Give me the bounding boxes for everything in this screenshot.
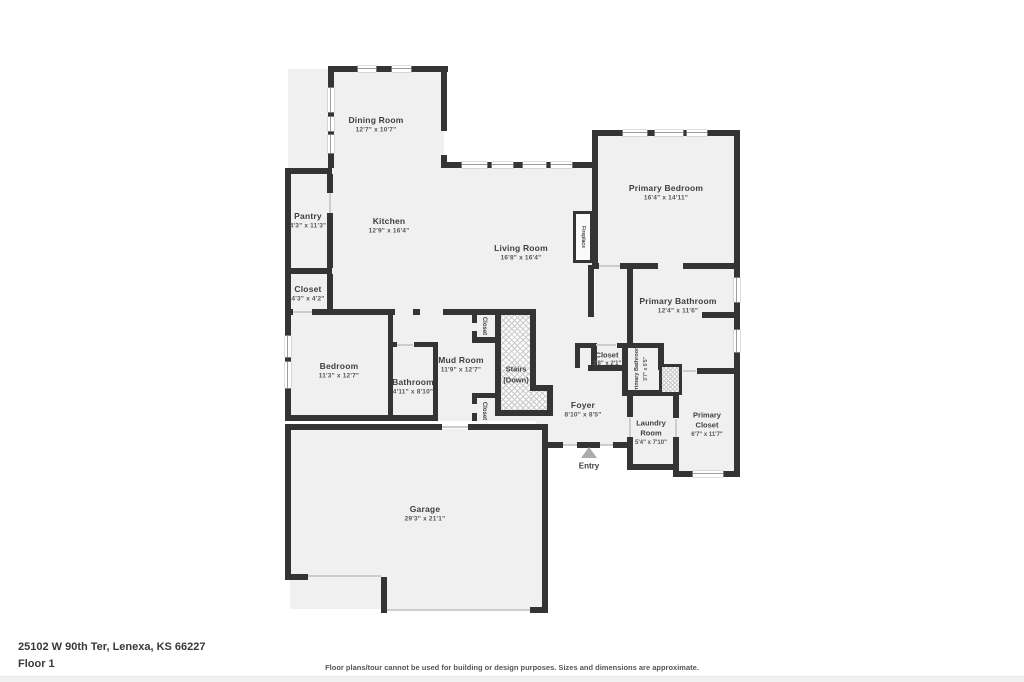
wall xyxy=(312,309,395,315)
door-opening xyxy=(629,418,631,437)
wall xyxy=(627,464,679,470)
wall xyxy=(542,424,548,613)
window xyxy=(734,278,740,302)
room-dims-foyer: 8'10" x 8'5" xyxy=(565,412,602,419)
wall xyxy=(627,437,633,470)
room-label-laundry-2: Room xyxy=(640,429,661,438)
window xyxy=(492,162,513,168)
wall xyxy=(547,385,553,416)
room-dims-living: 16'8" x 16'4" xyxy=(501,255,542,262)
room-dims-hall-closet: 3'8" x 2'1" xyxy=(593,361,622,367)
entry-door xyxy=(563,444,577,446)
window xyxy=(328,135,334,153)
door-opening xyxy=(600,444,613,446)
stairs-hatch xyxy=(531,391,548,411)
room-dims-primary-closet: 6'7" x 11'7" xyxy=(691,432,723,438)
stairs-label: Stairs xyxy=(506,365,527,374)
window xyxy=(462,162,487,168)
wall xyxy=(285,268,332,274)
garage-door-opening xyxy=(387,609,530,611)
room-label-garage: Garage xyxy=(410,504,441,514)
floor-plan-page: Dining Room 12'7" x 10'7" Kitchen 12'9" … xyxy=(0,0,1024,682)
door-opening xyxy=(596,344,616,346)
wall xyxy=(734,130,740,477)
floor-plan: Dining Room 12'7" x 10'7" Kitchen 12'9" … xyxy=(0,0,1024,682)
wall xyxy=(575,348,580,368)
window xyxy=(623,130,647,136)
room-label-foyer: Foyer xyxy=(571,400,595,410)
wall xyxy=(472,331,477,337)
window xyxy=(687,130,707,136)
room-label-primary-bedroom: Primary Bedroom xyxy=(629,183,703,193)
wall xyxy=(327,213,333,268)
door-opening xyxy=(397,344,413,346)
wall xyxy=(285,424,442,430)
room-dims-primary-bathroom-small: 3'7" x 5'5" xyxy=(643,357,649,381)
entry-label: Entry xyxy=(579,462,599,471)
room-label-living: Living Room xyxy=(494,243,548,253)
wall xyxy=(627,396,633,417)
room-label-pantry: Pantry xyxy=(294,211,322,221)
room-label-primary-closet: Primary xyxy=(693,411,721,420)
window xyxy=(285,336,291,357)
room-fill xyxy=(536,312,628,444)
door-opening xyxy=(675,419,677,437)
wall xyxy=(622,343,628,393)
wall xyxy=(327,174,333,193)
fireplace-label: Fireplace xyxy=(580,226,586,248)
wall xyxy=(588,265,594,317)
entry-arrow-icon xyxy=(581,447,597,458)
wall xyxy=(443,309,536,315)
address-label: 25102 W 90th Ter, Lenexa, KS 66227 xyxy=(18,641,206,653)
window xyxy=(285,362,291,388)
room-dims-laundry: 5'4" x 7'10" xyxy=(635,440,667,446)
window xyxy=(328,88,334,112)
room-label-primary-bathroom-small: Primary Bathroom xyxy=(634,345,640,393)
window xyxy=(523,162,546,168)
stairs-hatch xyxy=(498,315,531,412)
room-label-mud-room: Mud Room xyxy=(438,355,484,365)
wall xyxy=(472,315,477,323)
garage-door-opening xyxy=(308,575,381,577)
room-label-laundry: Laundry xyxy=(636,419,666,428)
wall xyxy=(495,309,501,416)
door-opening xyxy=(442,426,468,428)
disclaimer-text: Floor plans/tour cannot be used for buil… xyxy=(0,663,1024,672)
wall xyxy=(285,415,438,421)
wall xyxy=(530,312,536,391)
room-label-bathroom: Bathroom xyxy=(392,377,434,387)
wall xyxy=(441,155,447,168)
wall xyxy=(548,442,563,448)
wall xyxy=(495,410,553,416)
wall xyxy=(697,368,738,374)
wall xyxy=(472,413,477,421)
room-dims-kitchen: 12'9" x 16'4" xyxy=(369,228,410,235)
window xyxy=(551,162,572,168)
window xyxy=(392,66,411,72)
shower xyxy=(659,364,682,395)
room-dims-bathroom: 4'11" x 8'10" xyxy=(393,389,433,396)
room-label-primary-bathroom: Primary Bathroom xyxy=(639,296,716,306)
window xyxy=(328,117,334,131)
room-label-hall-closet: Closet xyxy=(596,351,619,360)
wall xyxy=(627,265,633,345)
room-dims-pantry: 4'3" x 11'3" xyxy=(290,223,327,230)
wall xyxy=(285,424,291,580)
door-opening xyxy=(599,265,620,267)
room-dims-mud-room: 11'9" x 12'7" xyxy=(441,367,481,374)
room-label-kitchen: Kitchen xyxy=(373,216,406,226)
wall xyxy=(413,309,420,315)
room-dims-garage: 29'3" x 21'1" xyxy=(405,516,446,523)
footer-strip xyxy=(0,676,1024,682)
room-label-closet-mud-top: Closet xyxy=(481,317,487,335)
door-opening xyxy=(293,311,312,313)
room-dims-dining: 12'7" x 10'7" xyxy=(356,127,397,134)
door-opening xyxy=(683,370,696,372)
wall xyxy=(472,398,477,404)
room-dims-closet-kitchen: 4'3" x 4'2" xyxy=(291,296,324,303)
room-dims-primary-bathroom: 12'4" x 11'6" xyxy=(658,308,698,315)
room-label-primary-closet-2: Closet xyxy=(696,421,719,430)
room-label-bedroom: Bedroom xyxy=(320,361,359,371)
window xyxy=(693,471,723,477)
wall xyxy=(441,66,447,131)
wall xyxy=(327,274,333,309)
wall xyxy=(328,66,448,72)
room-label-closet-mud-bottom: Closet xyxy=(481,402,487,420)
wall xyxy=(468,424,548,430)
window xyxy=(358,66,376,72)
wall xyxy=(285,168,332,174)
wall xyxy=(683,263,740,269)
wall xyxy=(673,437,679,477)
room-label-closet-kitchen: Closet xyxy=(294,284,321,294)
wall xyxy=(620,263,658,269)
window xyxy=(655,130,683,136)
wall xyxy=(381,577,387,613)
stairs-label-down: (Down) xyxy=(503,376,528,385)
wall xyxy=(388,315,393,421)
room-label-dining: Dining Room xyxy=(348,115,403,125)
window xyxy=(734,330,740,352)
door-opening xyxy=(329,193,331,213)
room-dims-primary-bedroom: 16'4" x 14'11" xyxy=(644,195,688,202)
room-dims-bedroom: 11'3" x 12'7" xyxy=(319,373,359,380)
